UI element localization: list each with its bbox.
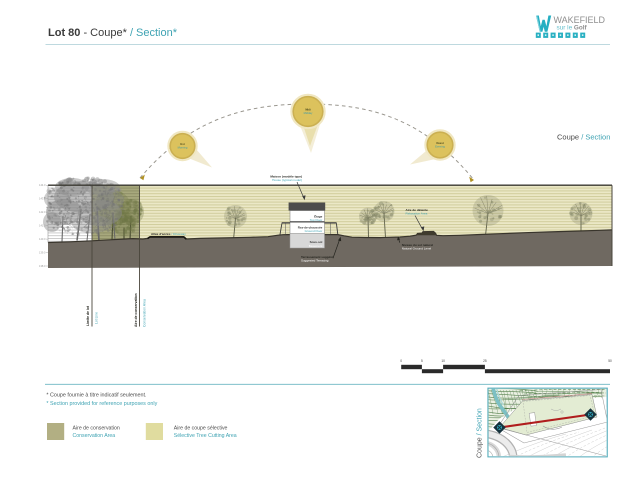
svg-text:141.0: 141.0 <box>39 224 46 228</box>
svg-text:Coupe / Section: Coupe / Section <box>477 408 484 458</box>
svg-text:Relaxation Area: Relaxation Area <box>406 211 428 215</box>
svg-text:WAKEFIELD: WAKEFIELD <box>554 15 606 25</box>
svg-text:142.0: 142.0 <box>39 210 46 214</box>
svg-text:143.0: 143.0 <box>39 197 46 201</box>
svg-text:Suggested Terracing: Suggested Terracing <box>301 258 329 262</box>
svg-text:Allée d'accès / Driveway: Allée d'accès / Driveway <box>151 232 186 236</box>
svg-text:Sélective Tree Cutting Area: Sélective Tree Cutting Area <box>174 433 237 439</box>
svg-text:Ouest: Ouest <box>436 141 444 145</box>
svg-text:Midi: Midi <box>305 107 311 111</box>
svg-text:139.0: 139.0 <box>39 250 46 254</box>
svg-text:Natural Ground Level: Natural Ground Level <box>402 246 432 250</box>
svg-text:Lot Line: Lot Line <box>95 312 99 324</box>
svg-text:Top Floor: Top Floor <box>310 218 323 222</box>
svg-text:Basement: Basement <box>309 244 323 248</box>
svg-text:Limite de lot: Limite de lot <box>86 305 90 326</box>
svg-text:Est: Est <box>180 142 184 146</box>
svg-text:Conservation Area: Conservation Area <box>73 433 116 439</box>
svg-text:* Coupe fournie à titre indica: * Coupe fournie à titre indicatif seulem… <box>46 393 146 399</box>
svg-text:144.0: 144.0 <box>39 183 46 187</box>
svg-text:Aire de conservation: Aire de conservation <box>134 293 138 327</box>
svg-text:House (typical model): House (typical model) <box>272 178 302 182</box>
svg-text:Aire de coupe sélective: Aire de coupe sélective <box>174 426 228 432</box>
svg-text:Evening: Evening <box>435 144 445 148</box>
svg-text:138.0: 138.0 <box>39 264 46 268</box>
svg-text:Morning: Morning <box>178 145 188 149</box>
svg-text:Ground Floor: Ground Floor <box>305 229 323 233</box>
svg-text:Conservation Area: Conservation Area <box>143 299 147 327</box>
svg-text:50: 50 <box>608 359 612 363</box>
svg-text:140.0: 140.0 <box>39 237 46 241</box>
svg-text:Aire de conservation: Aire de conservation <box>73 426 120 432</box>
svg-text:0: 0 <box>400 359 402 363</box>
svg-text:5: 5 <box>421 359 423 363</box>
svg-text:sur le Golf: sur le Golf <box>557 24 588 31</box>
svg-text:Lot 80 - Coupe* / Section*: Lot 80 - Coupe* / Section* <box>48 27 178 39</box>
svg-text:Midday: Midday <box>304 111 313 115</box>
svg-text:25: 25 <box>483 359 487 363</box>
svg-text:* Section provided for referen: * Section provided for reference purpose… <box>46 401 157 407</box>
svg-text:10: 10 <box>441 359 445 363</box>
svg-text:Coupe / Section: Coupe / Section <box>557 133 610 142</box>
